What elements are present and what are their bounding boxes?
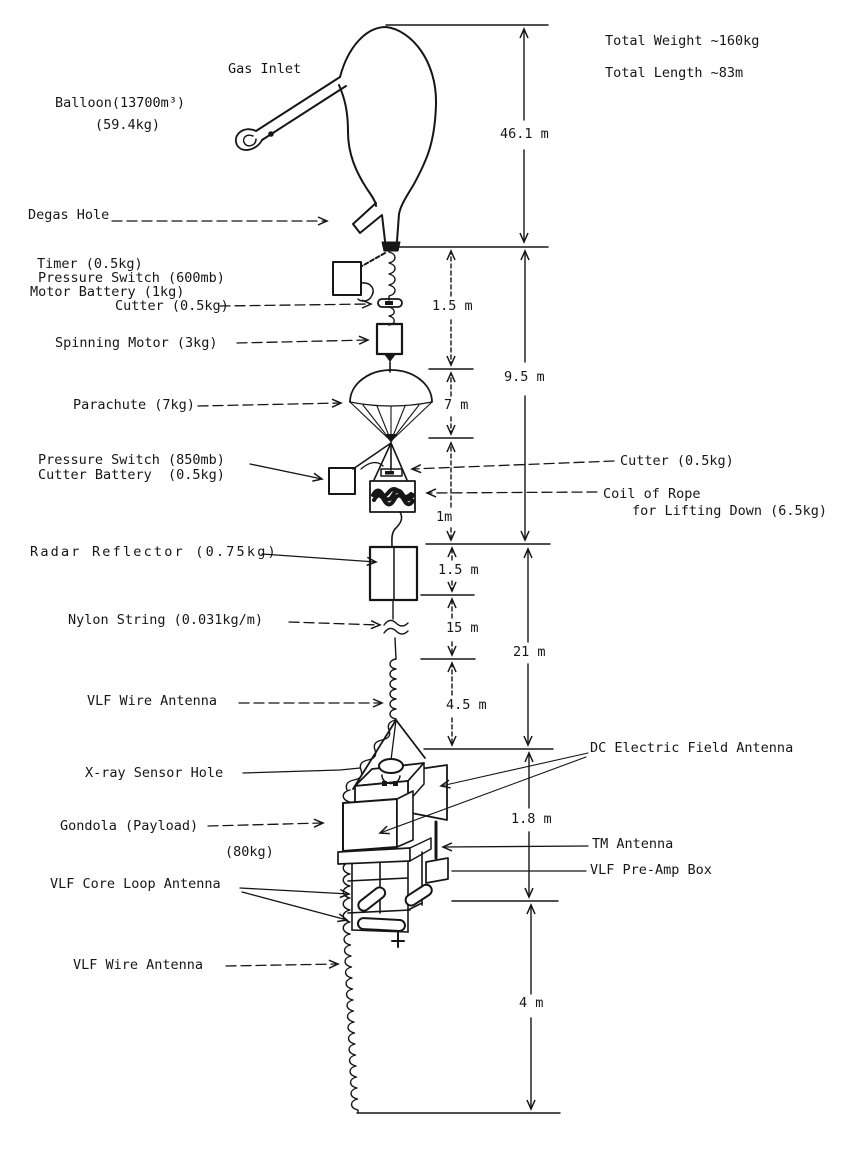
parachute-pointer	[198, 403, 341, 406]
parachute-label: Parachute (7kg)	[73, 398, 195, 413]
vlf-preamp-box-shape	[426, 858, 448, 883]
balloon-payload-diagram: Total Weight ~160kg Total Length ~83m Ga…	[0, 0, 855, 1156]
xray-sensor-hole-shape	[379, 759, 403, 773]
coil-of-rope-label-2: for Lifting Down (6.5kg)	[632, 504, 827, 519]
degas-hole-spout	[353, 203, 385, 241]
core-loop-pointer-1	[240, 888, 349, 894]
nylon-string-label: Nylon String (0.031kg/m)	[68, 613, 263, 628]
total-weight-text: Total Weight ~160kg	[605, 34, 759, 49]
pressure-switch-850-box	[329, 468, 355, 494]
radar-reflector-label: Radar Reflector (0.75kg)	[30, 545, 278, 560]
vlf-wire-upper	[390, 659, 396, 719]
core-loop-pointer-2	[242, 892, 347, 920]
cutter-battery-label: Cutter Battery (0.5kg)	[38, 468, 225, 483]
spinning-motor-pointer	[237, 340, 368, 343]
spinning-motor-box	[377, 324, 402, 354]
balloon-weight-label: (59.4kg)	[95, 118, 160, 133]
gondola-drawing	[338, 720, 448, 1113]
nylon-string-pointer	[289, 622, 380, 625]
vlf-preamp-label: VLF Pre-Amp Box	[590, 863, 712, 878]
gas-inlet-tube	[236, 77, 346, 150]
dim-46-1: 46.1 m	[500, 127, 549, 142]
flight-train	[329, 252, 432, 719]
dim-4-5: 4.5 m	[446, 698, 487, 713]
spinning-motor-label: Spinning Motor (3kg)	[55, 336, 218, 351]
total-length-text: Total Length ~83m	[605, 66, 743, 81]
coil-of-rope-pointer	[427, 492, 597, 493]
coil-of-rope-scribble	[373, 489, 413, 505]
balloon-neck-fitting	[382, 242, 400, 251]
diagram-canvas	[0, 0, 855, 1156]
dc-field-pointer-1	[441, 753, 588, 786]
parachute-drawing	[350, 370, 432, 443]
vlf-core-loop-rods	[356, 883, 434, 932]
cutter-right-label: Cutter (0.5kg)	[620, 454, 734, 469]
xray-sensor-hole-label: X-ray Sensor Hole	[85, 766, 223, 781]
dim-1-5-upper: 1.5 m	[432, 299, 473, 314]
dim-15: 15 m	[446, 621, 479, 636]
gas-inlet-label: Gas Inlet	[228, 62, 301, 77]
pressure-switch-850-label: Pressure Switch (850mb)	[38, 453, 225, 468]
pressure-switch-850-pointer	[250, 464, 322, 479]
dim-1-5-mid: 1.5 m	[438, 563, 479, 578]
coil-of-rope-label-1: Coil of Rope	[603, 487, 701, 502]
suspension-chain	[389, 252, 395, 300]
tm-antenna-label: TM Antenna	[592, 837, 673, 852]
gondola-pointer	[208, 823, 323, 826]
dim-1: 1m	[436, 510, 452, 525]
vlf-wire-lower	[344, 934, 358, 1113]
degas-hole-label: Degas Hole	[28, 208, 109, 223]
balloon-label: Balloon(13700m³)	[55, 96, 185, 111]
dc-field-antenna-label: DC Electric Field Antenna	[590, 741, 793, 756]
gondola-main-box	[343, 799, 397, 851]
xray-sensor-hole-pointer	[243, 768, 360, 773]
dim-9-5: 9.5 m	[504, 370, 545, 385]
string-break-symbol	[384, 620, 408, 634]
vlf-wire-lower-pointer	[226, 964, 338, 966]
gondola-label: Gondola (Payload)	[60, 819, 198, 834]
timer-rope	[362, 253, 385, 266]
radar-reflector-pointer	[262, 554, 376, 562]
tm-antenna-pointer	[443, 846, 588, 847]
cutter-upper-pointer	[220, 304, 371, 306]
vlf-wire-lower-label: VLF Wire Antenna	[73, 958, 203, 973]
vlf-wire-upper-label: VLF Wire Antenna	[87, 694, 217, 709]
dim-7: 7 m	[444, 398, 468, 413]
dim-21: 21 m	[513, 645, 546, 660]
dim-4: 4 m	[519, 996, 543, 1011]
timer-box	[333, 262, 361, 295]
dim-1-8: 1.8 m	[511, 812, 552, 827]
gondola-weight-label: (80kg)	[225, 845, 274, 860]
cutter-upper-label: Cutter (0.5kg)	[115, 299, 229, 314]
vlf-core-loop-label: VLF Core Loop Antenna	[50, 877, 221, 892]
cutter-right-pointer	[412, 461, 614, 469]
